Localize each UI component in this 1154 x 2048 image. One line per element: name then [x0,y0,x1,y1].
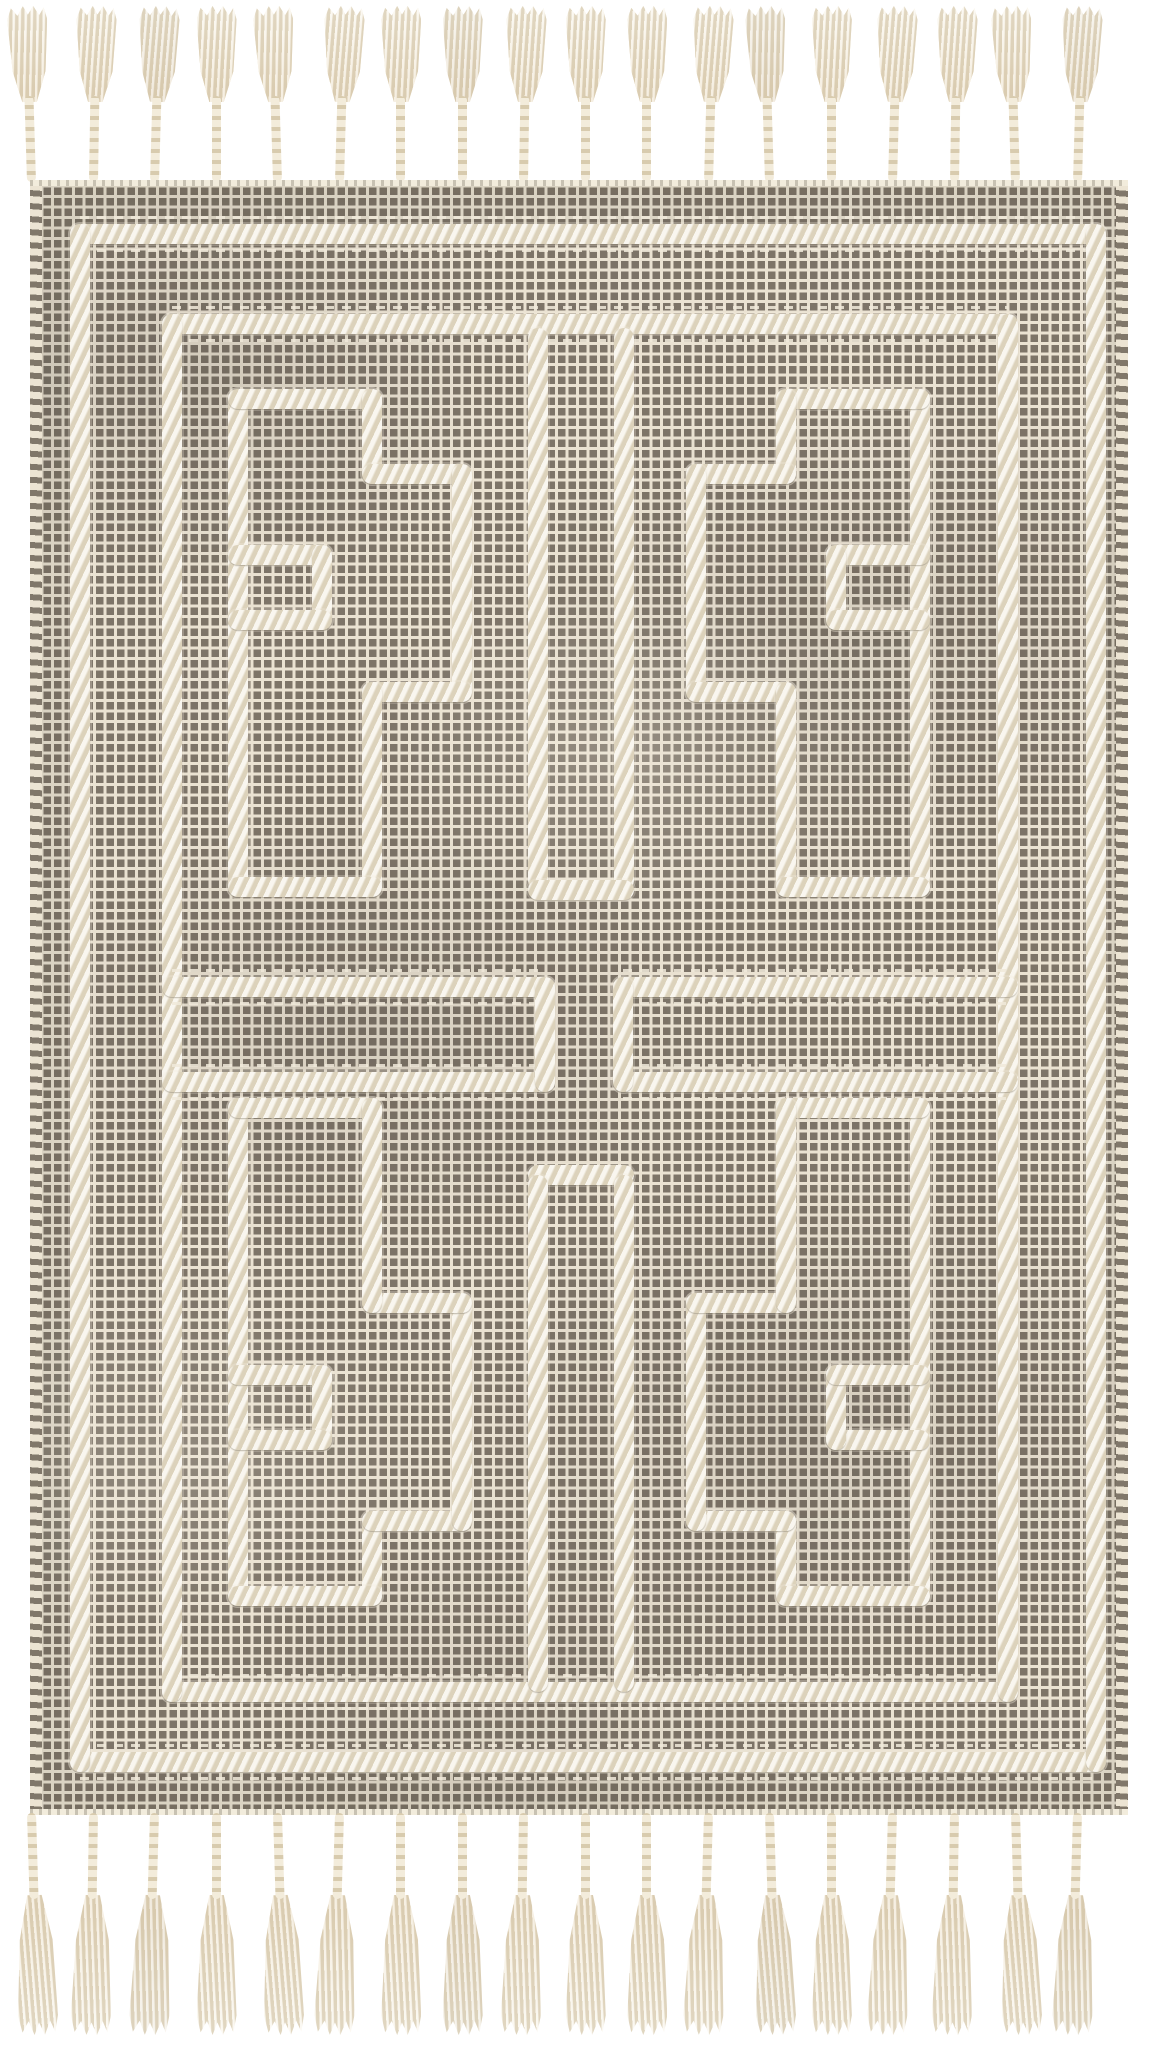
tassel-cord [1009,96,1021,182]
tassel-head [137,6,180,103]
tassel [743,5,792,182]
tassel-cord [701,1813,712,1899]
tassel [564,1813,608,2035]
selvedge-top [30,180,1128,186]
motif-br-step4 [776,1098,796,1313]
tassel-cord [332,1813,343,1899]
motif-bl-spine [228,1098,248,1606]
tassel-head [876,6,919,103]
tassel-head [745,5,788,102]
motif-tr-step4 [776,682,796,897]
tassel-cord [273,1813,285,1899]
tassel [687,5,736,182]
tassel-cord [704,96,715,182]
tassel-cord [87,1813,97,1899]
tassel [318,5,367,182]
tassel-cord [827,1813,836,1899]
tassel-head [70,1895,112,2036]
tassel-head [691,6,734,103]
tassel-cord [1011,1813,1023,1899]
tassel [810,6,854,182]
tassel [5,5,54,182]
tassel-head [129,1894,173,2035]
motif-bl-bottom [228,1586,382,1606]
tassel-head [443,1895,483,2035]
mid-bar-right-bottom [613,1072,1018,1092]
center-top-bar-bottom [528,880,634,900]
tassel [681,1812,731,2035]
center-bottom-bar-right [614,1175,634,1692]
motif-tr-top [776,389,930,409]
tassel-cord [827,96,836,182]
tassel [625,6,669,182]
mid-bar-right-top [613,977,1018,997]
tassel-head [197,1895,237,2035]
tassel [195,6,239,182]
tassel-cord [581,1813,590,1899]
motif-tl-hook-bottom [228,610,332,630]
outer-frame-top [70,224,1106,244]
tassel-cord [458,96,467,182]
tassel-head [627,6,667,102]
tassel [441,6,485,182]
tassel-head [991,5,1034,102]
tassel [625,1813,669,2035]
whip-stitch-edge-right [1116,183,1128,1812]
tassel-head [253,5,296,102]
tassel [564,6,608,182]
motif-tl-bottom [228,877,382,897]
motif-br-spine [910,1098,930,1606]
tassel-cord [27,1813,39,1899]
tassel-cord [1071,1813,1082,1899]
tassel-head [812,1895,852,2035]
tassel-head [322,6,365,103]
panel-frame-right [998,314,1018,1702]
panel-frame-top [162,314,1018,334]
tassel-cord [212,96,221,182]
motif-tl-top [228,389,382,409]
rug-photo: Flat-lay photo of a handwoven cream and … [0,0,1154,2048]
center-top-bar-left [528,328,548,890]
center-top-bar-right [614,328,634,890]
motif-tl-spine [228,389,248,897]
motif-bl-step4 [362,1098,382,1313]
motif-tr-hook-bottom [826,610,930,630]
tassel-cord [148,1813,159,1899]
tassel [68,1813,115,2036]
whip-stitch-edge-left [30,183,42,1812]
tassel [989,5,1038,182]
motif-tr-spine [910,389,930,897]
tassel [379,1813,423,2035]
tassel-cord [396,96,405,182]
tassel [311,1812,361,2035]
tassel-head [936,6,978,103]
tassel-head [627,1895,667,2035]
tassel [499,1813,546,2036]
tassel-cord [763,96,775,182]
panel-frame-left [162,314,182,1702]
tassel-cord [458,1813,467,1899]
outer-frame-bottom [70,1752,1106,1772]
tassel-head [867,1894,911,2035]
tassel-cord [212,1813,221,1899]
tassel-cord [581,96,590,182]
motif-br-bottom [776,1586,930,1606]
tassel-cord [888,96,899,182]
tassel-head [505,6,547,103]
tassel-cord [642,96,651,182]
tassel-head [501,1895,543,2036]
tassel-head [261,1894,305,2035]
mid-bar-left-end [535,977,555,1092]
tassel-cord [1073,96,1084,182]
motif-br-top [776,1098,930,1118]
motif-tl-step4 [362,682,382,897]
tassel-head [197,6,237,102]
tassel [72,6,119,183]
motif-bl-drop [452,1293,472,1531]
motif-bl-hook-bottom [228,1430,332,1450]
tassel-cord [150,96,161,182]
motif-tl-drop [452,464,472,702]
tassel-cord [765,1813,777,1899]
tassel-head [7,5,50,102]
tassel-head [931,1895,973,2036]
tassel-head [313,1894,357,2035]
tassel-head [1060,6,1103,103]
motif-tr-bottom [776,877,930,897]
tassel-cord [519,96,529,182]
tassel-cord [271,96,283,182]
tassel [10,1812,61,2035]
tassel-head [753,1894,797,2035]
motif-bl-top [228,1098,382,1118]
mid-bar-left-bottom [162,1072,555,1092]
tassel [441,1813,485,2035]
tassel [748,1812,799,2035]
tassel-cord [949,1813,959,1899]
tassel-head [381,6,421,102]
tassel-head [812,6,852,102]
photo-caption: Flat-lay photo of a handwoven cream and … [0,0,1,1]
tassel-cord [642,1813,651,1899]
tassel [379,6,423,182]
mid-bar-right-end [613,977,633,1092]
tassel [127,1812,177,2035]
tassel [502,6,549,183]
tassel-head [443,6,483,102]
rug-body [30,180,1128,1815]
tassel-cord [89,96,99,182]
tassel [133,5,182,182]
tassel [1056,5,1105,182]
mid-bar-left-top [162,977,555,997]
outer-band-shading [30,180,1128,1815]
tassel-head [1052,1894,1096,2035]
panel-frame-bottom [162,1682,1018,1702]
tassel [256,1812,307,2035]
tassel-cord [335,96,346,182]
center-bottom-bar-left [528,1175,548,1692]
tassel-cord [518,1813,528,1899]
motif-br-hook-bottom [826,1365,930,1385]
tassel [871,5,920,182]
motif-br-drop [686,1293,706,1531]
tassel-head [381,1895,421,2035]
motif-tr-drop [686,464,706,702]
tassel [810,1813,854,2035]
tassel [865,1812,915,2035]
outer-frame-right [1086,224,1106,1772]
tassel-head [566,6,606,102]
tassel-cord [950,96,960,182]
tassel [1050,1812,1100,2035]
tassel-head [566,1895,606,2035]
tassel-head [999,1894,1043,2035]
outer-frame-left [70,224,90,1772]
tassel-cord [886,1813,897,1899]
tassel-head [683,1894,727,2035]
tassel-cord [396,1813,405,1899]
tassel-cord [24,96,36,182]
tassel [195,1813,239,2035]
tassel [251,5,300,182]
weave-mottling [30,180,1128,1815]
tassel [994,1812,1045,2035]
tassel [933,6,980,183]
tassel-head [75,6,117,103]
tassel [929,1813,976,2036]
tassel-head [14,1894,58,2035]
